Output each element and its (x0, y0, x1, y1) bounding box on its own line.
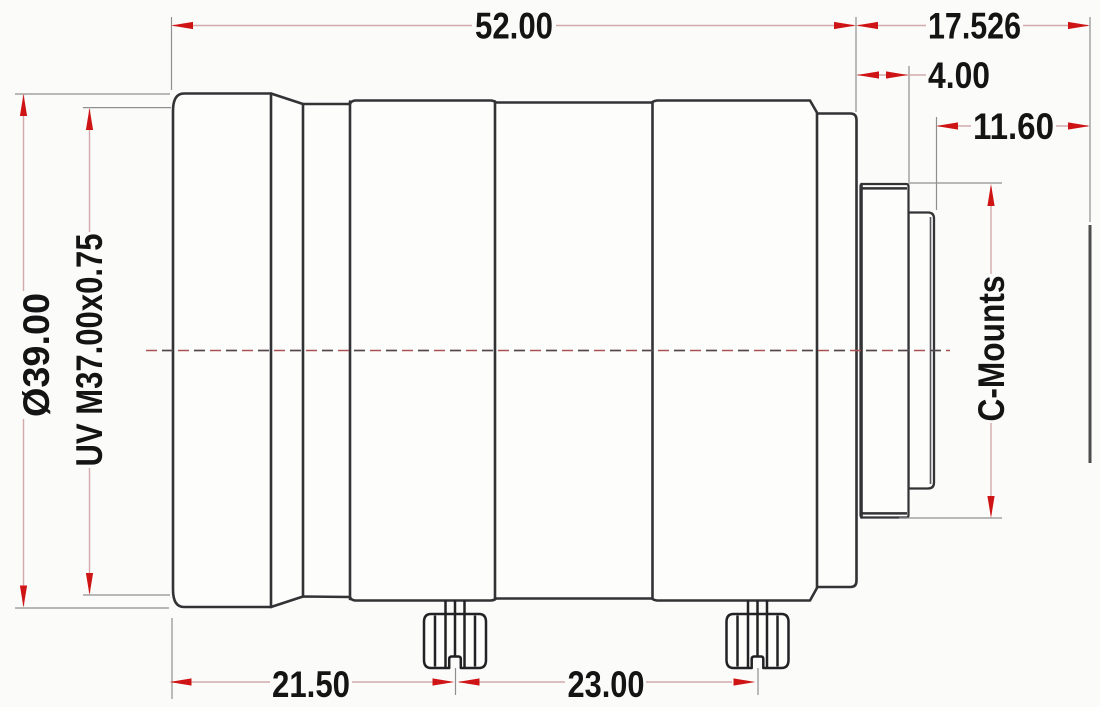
svg-text:21.50: 21.50 (272, 664, 350, 705)
svg-text:4.00: 4.00 (928, 55, 990, 96)
svg-text:C-Mounts: C-Mounts (971, 276, 1012, 422)
svg-text:52.00: 52.00 (475, 6, 553, 47)
svg-text:Ø39.00: Ø39.00 (16, 293, 57, 417)
svg-text:11.60: 11.60 (973, 106, 1054, 147)
svg-text:17.526: 17.526 (928, 6, 1021, 47)
svg-text:23.00: 23.00 (568, 664, 645, 705)
svg-text:UV M37.00x0.75: UV M37.00x0.75 (69, 234, 110, 467)
